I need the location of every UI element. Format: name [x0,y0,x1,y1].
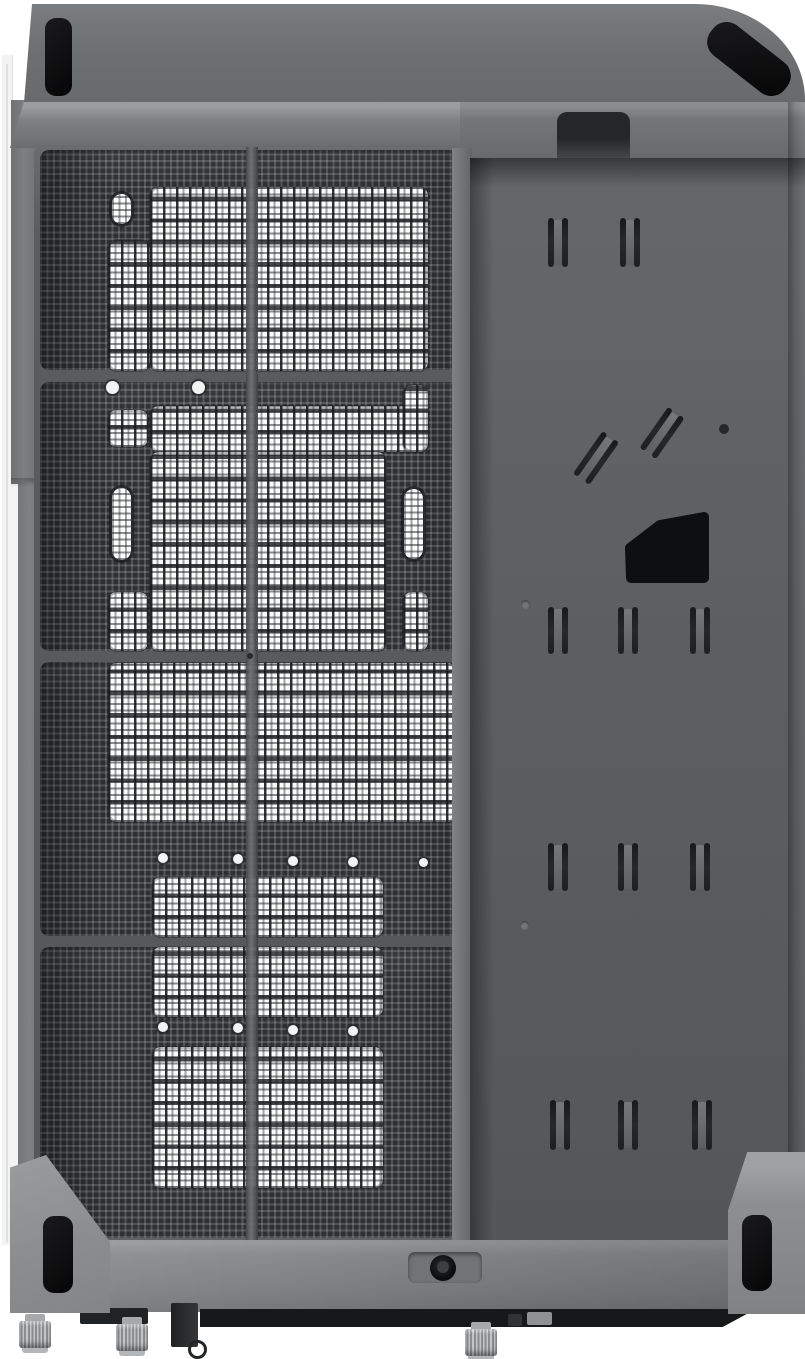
mid-frame-bar [452,148,472,1245]
vent-slot-pair-r4c [692,1100,712,1150]
rubber-pad-bottom-left [43,1216,73,1293]
bracket-pull-ring [188,1340,207,1359]
product-scene [0,0,805,1359]
vent-slot-pair-r4a [550,1100,570,1150]
tray-panel [470,158,805,1245]
top-cover-chamfer [10,102,470,148]
vent-slot-pair-r1b [620,218,640,267]
thumbscrew-knurl [465,1329,497,1356]
screw-hole-s3-c [288,856,298,866]
white-cutout-s2-main [150,452,386,651]
white-cutout-s2-rightbottom [403,592,428,651]
vent-slot-pair-r1a [548,218,568,267]
thumbscrew-tip [119,1351,145,1356]
white-cutout-s2-leftbottom [108,592,148,651]
mesh-vertical-divider [246,147,258,1243]
screw-hole-s3-b [233,854,243,864]
pilot-hole-upper [719,424,729,434]
rubber-pad-top-left [45,18,72,96]
shell-seam-line [6,64,8,1242]
thumbscrew-tip [22,1348,48,1353]
screw-hole-s2-b [192,381,205,394]
vent-slot-pair-r2a [548,607,568,654]
underside-clip [527,1312,552,1325]
screw-hole-s4-b [233,1023,243,1033]
screw-hole-s4-a [158,1022,168,1032]
pilot-hole-mid [521,600,530,609]
white-cutout-s4-top [152,947,383,1017]
vent-slot-pair-r3b [618,843,638,891]
handle-slot-s2-left [112,488,131,560]
white-cutout-s1-main [150,187,428,371]
divider-screw-dot [247,653,253,659]
thumbscrew-knurl [116,1324,148,1351]
thumbscrew-foot-2 [116,1317,148,1356]
recessed-fastener [430,1255,456,1281]
thumbscrew-cap [25,1314,45,1321]
underside-clip-dark [508,1314,522,1326]
screw-hole-s4-c [288,1025,298,1035]
white-cutout-s2-topright [403,385,428,452]
pilot-hole-lower [520,921,529,930]
vent-slot-pair-r3c [690,843,710,891]
white-cutout-s2-lefttop [108,410,148,447]
rubber-pad-bottom-right [742,1215,772,1291]
screw-hole-s4-d [348,1026,358,1036]
right-edge-shade [788,102,805,1245]
top-cover-lip [460,102,805,158]
handle-slot-s2-right [404,489,423,559]
screw-hole-s3-e [419,858,428,867]
vent-slot-pair-r2c [690,607,710,654]
thumbscrew-knurl [19,1321,51,1348]
vent-slot-pair-r2b [618,607,638,654]
thumbscrew-cap [471,1322,491,1329]
thumbscrew-foot-3 [465,1322,497,1359]
top-cover [24,4,805,103]
vent-slot-pair-r4b [618,1100,638,1150]
screw-hole-s3-d [348,857,358,867]
screw-hole-s2-a [106,381,119,394]
screw-hole-s3-a [158,853,168,863]
white-cutout-s3-lower [152,877,383,937]
latch-notch [557,112,630,160]
thumbscrew-foot-1 [19,1314,51,1353]
white-cutout-s3-main [108,663,456,822]
white-cutout-s1-left [108,240,150,371]
handle-slot-s1 [112,194,131,224]
vent-slot-pair-r3a [548,843,568,891]
cable-grommet [620,510,712,586]
thumbscrew-cap [122,1317,142,1324]
white-cutout-s2-top [150,406,428,452]
white-cutout-s4-main [152,1047,383,1188]
